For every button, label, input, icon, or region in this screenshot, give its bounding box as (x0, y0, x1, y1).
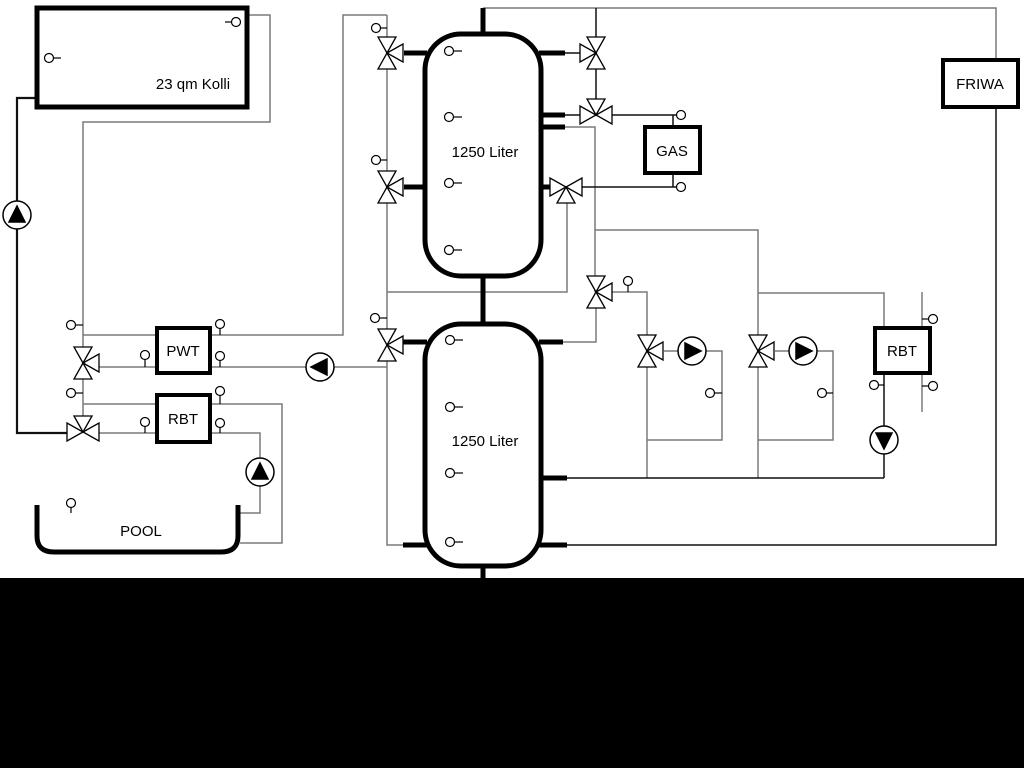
pump-icon (3, 201, 31, 229)
schematic-canvas: 23 qm Kolli 1250 Liter 1250 Liter GAS FR… (0, 0, 1024, 768)
collector-label: 23 qm Kolli (156, 76, 230, 93)
tank-bottom-label: 1250 Liter (452, 433, 519, 450)
pump-icon (246, 458, 274, 486)
sensor-icon (677, 183, 686, 192)
tank-top-label: 1250 Liter (452, 144, 519, 161)
pump-icon (306, 353, 334, 381)
sensor-icon (677, 111, 686, 120)
letterbox-bar (0, 578, 1024, 768)
rbt-right-label: RBT (887, 343, 917, 360)
pump-icon (870, 426, 898, 454)
hydraulic-schematic: 23 qm Kolli 1250 Liter 1250 Liter GAS FR… (0, 0, 1024, 768)
pool-label: POOL (120, 523, 162, 540)
pump-icon (789, 337, 817, 365)
friwa-label: FRIWA (956, 76, 1004, 93)
gas-label: GAS (656, 143, 688, 160)
rbt-left-label: RBT (168, 411, 198, 428)
pump-icon (678, 337, 706, 365)
pwt-label: PWT (166, 343, 199, 360)
